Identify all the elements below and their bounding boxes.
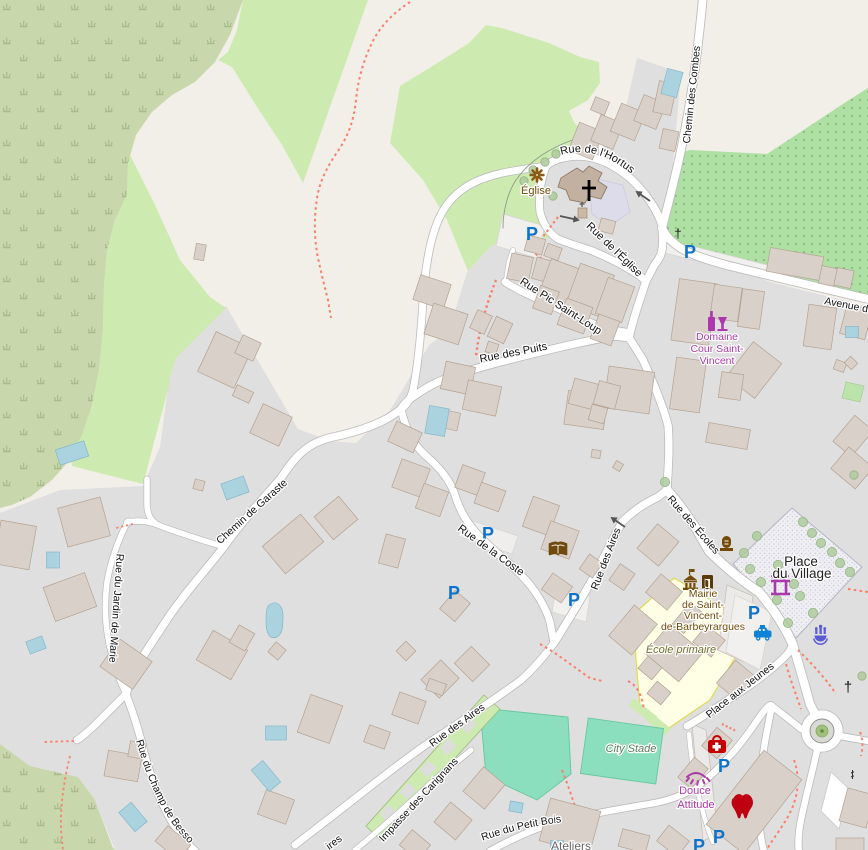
svg-text:Douce: Douce [679,785,711,797]
svg-text:†: † [844,679,852,696]
svg-text:Vincent: Vincent [700,355,735,367]
svg-text:P: P [448,583,460,603]
svg-text:École primaire: École primaire [646,643,716,656]
svg-text:P: P [748,603,760,623]
svg-text:P: P [568,590,580,610]
svg-text:P: P [713,827,725,847]
svg-text:†: † [674,226,681,241]
svg-text:P: P [684,242,696,262]
svg-text:P: P [718,756,730,776]
svg-text:Cour Saint-: Cour Saint- [690,343,744,355]
svg-text:Attitude: Attitude [677,799,714,811]
svg-text:P: P [693,836,705,850]
svg-text:Ateliers: Ateliers [551,839,591,850]
svg-text:du Village: du Village [772,566,831,581]
svg-text:P: P [526,224,538,244]
svg-text:City Stade: City Stade [606,743,657,755]
svg-text:Église: Église [521,184,551,197]
svg-text:de-Barbeyrargues: de-Barbeyrargues [661,621,745,633]
svg-text:Domaine: Domaine [696,331,738,343]
